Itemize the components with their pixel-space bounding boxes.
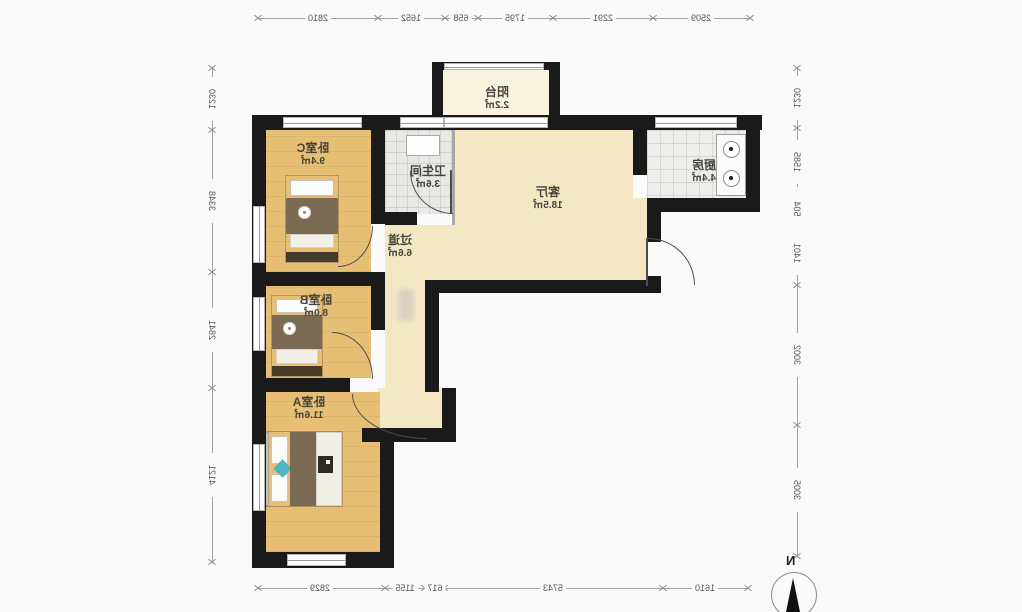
dim-arrow <box>793 64 802 73</box>
room-area: 2.2㎡ <box>462 100 532 113</box>
room-name: 客厅 <box>513 185 583 200</box>
label-kitchen: 厨房 4.4㎡ <box>669 158 739 186</box>
dim-left-3: 2841 <box>206 308 218 352</box>
pillow <box>290 180 334 196</box>
blanket <box>290 432 316 506</box>
dim-arrow <box>254 14 263 23</box>
wall-bedroom-c-right <box>371 130 385 224</box>
dim-bottom-4: 5743 <box>540 582 566 594</box>
dim-top-3: 658 <box>450 12 471 24</box>
label-living: 客厅 18.5㎡ <box>513 185 583 213</box>
window-kitchen-top <box>655 117 737 128</box>
wall-bathroom-bottom <box>385 212 417 225</box>
wall-bedroom-b-right <box>371 286 385 330</box>
window-bedroom-c-top <box>283 117 362 128</box>
compass-north-arrow-icon <box>786 578 800 612</box>
bathroom-sink <box>406 135 440 156</box>
blanket-logo <box>298 206 311 219</box>
dim-bottom-5: 1610 <box>692 582 718 594</box>
wall-nook-right <box>442 388 456 434</box>
dim-arrow <box>374 14 383 23</box>
window-bedroom-c-left <box>253 206 265 263</box>
pillow <box>271 436 288 464</box>
dim-arrow <box>744 584 753 593</box>
room-name: 厨房 <box>669 158 739 173</box>
room-name: 卧室B <box>281 293 351 308</box>
dim-arrow <box>474 14 483 23</box>
dim-arrow <box>793 281 802 290</box>
dim-right-3: 504 <box>791 187 803 231</box>
dim-right-5: 3002 <box>791 333 803 377</box>
dim-bottom-3: 617 <box>424 582 445 594</box>
room-area: 8.0㎡ <box>281 308 351 321</box>
dim-arrow <box>549 14 558 23</box>
dim-right-6: 3005 <box>791 468 803 512</box>
dim-arrow <box>208 558 217 567</box>
dim-arrow <box>659 584 668 593</box>
room-name: 卫生间 <box>393 164 463 179</box>
room-name: 过道 <box>365 233 435 248</box>
footboard <box>286 252 338 262</box>
dim-arrow <box>208 126 217 135</box>
dim-arrow <box>649 14 658 23</box>
dim-bottom-1: 2829 <box>307 582 333 594</box>
wall-living-bottom <box>425 280 661 293</box>
blanket <box>286 198 338 234</box>
room-area: 11.6㎡ <box>274 410 344 423</box>
room-area: 4.4㎡ <box>669 173 739 186</box>
dim-arrow <box>381 584 390 593</box>
wall-balcony-left <box>432 62 443 117</box>
footboard <box>272 366 322 376</box>
dim-top-5: 2291 <box>590 12 616 24</box>
window-balcony <box>444 63 544 70</box>
room-area: 18.5㎡ <box>513 200 583 213</box>
dim-top-2: 1652 <box>398 12 424 24</box>
compass-north-label: N <box>786 553 795 568</box>
watermark-smudge <box>398 289 414 321</box>
dim-right-4: 1401 <box>791 231 803 275</box>
dim-top-6: 2509 <box>688 12 714 24</box>
room-name: 卧室A <box>274 395 344 410</box>
bed-single-c <box>286 176 338 262</box>
dim-left-2: 3348 <box>206 179 218 223</box>
wall-kitchen-left <box>633 115 647 175</box>
wall-living-right-upper <box>647 198 661 242</box>
room-area: 9.4㎡ <box>278 156 348 169</box>
dim-left-4: 4121 <box>206 453 218 497</box>
window-bathroom-top <box>400 117 444 128</box>
wall-c-b-divider <box>252 272 385 286</box>
wall-bedroom-a-right <box>380 440 394 566</box>
bed-double-a <box>262 432 342 506</box>
dim-arrow <box>793 421 802 430</box>
label-hallway: 过道 6.6㎡ <box>365 233 435 261</box>
wall-hallway-right <box>425 280 439 392</box>
label-balcony: 阳台 2.2㎡ <box>462 85 532 113</box>
dim-right-1: 1230 <box>791 76 803 120</box>
wall-kitchen-bottom <box>660 198 760 212</box>
dim-arrow <box>254 584 263 593</box>
pillow <box>271 474 288 502</box>
dim-arrow <box>208 268 217 277</box>
balcony-sliding-door <box>444 117 548 128</box>
room-area: 3.6㎡ <box>393 179 463 192</box>
dim-arrow <box>746 14 755 23</box>
stove-burner <box>723 141 740 158</box>
room-area: 6.6㎡ <box>365 248 435 261</box>
dim-arrow <box>208 64 217 73</box>
room-name: 卧室C <box>278 141 348 156</box>
folded-quilt <box>318 456 333 473</box>
entrance-door-arc <box>648 238 695 285</box>
wall-b-a-divider <box>252 378 350 392</box>
dim-top-1: 2810 <box>305 12 331 24</box>
dim-top-4: 1795 <box>502 12 528 24</box>
dim-left-1: 1230 <box>206 77 218 121</box>
label-bedroom-b: 卧室B 8.0㎡ <box>281 293 351 321</box>
wall-kitchen-right <box>746 115 760 212</box>
room-name: 阳台 <box>462 85 532 100</box>
dim-right-2: 1585 <box>791 140 803 184</box>
floor-plan-image: 阳台 2.2㎡ 卧室C 9.4㎡ 卫生间 3.6㎡ 客厅 18.5㎡ 厨房 4.… <box>0 0 1022 612</box>
dim-arrow <box>441 14 450 23</box>
wall-balcony-right <box>549 62 560 117</box>
window-bedroom-a-bottom <box>287 554 346 566</box>
label-bathroom: 卫生间 3.6㎡ <box>393 164 463 192</box>
window-bedroom-a-left <box>253 444 265 511</box>
label-bedroom-a: 卧室A 11.6㎡ <box>274 395 344 423</box>
entrance-door-leaf <box>646 238 648 286</box>
dim-arrow <box>793 124 802 133</box>
label-bedroom-c: 卧室C 9.4㎡ <box>278 141 348 169</box>
window-bedroom-b-left <box>253 297 265 351</box>
blanket-logo <box>283 322 296 335</box>
sheet <box>290 234 334 248</box>
dim-arrow <box>208 384 217 393</box>
dim-bottom-2: 1155 <box>392 582 417 594</box>
sheet <box>276 349 318 364</box>
